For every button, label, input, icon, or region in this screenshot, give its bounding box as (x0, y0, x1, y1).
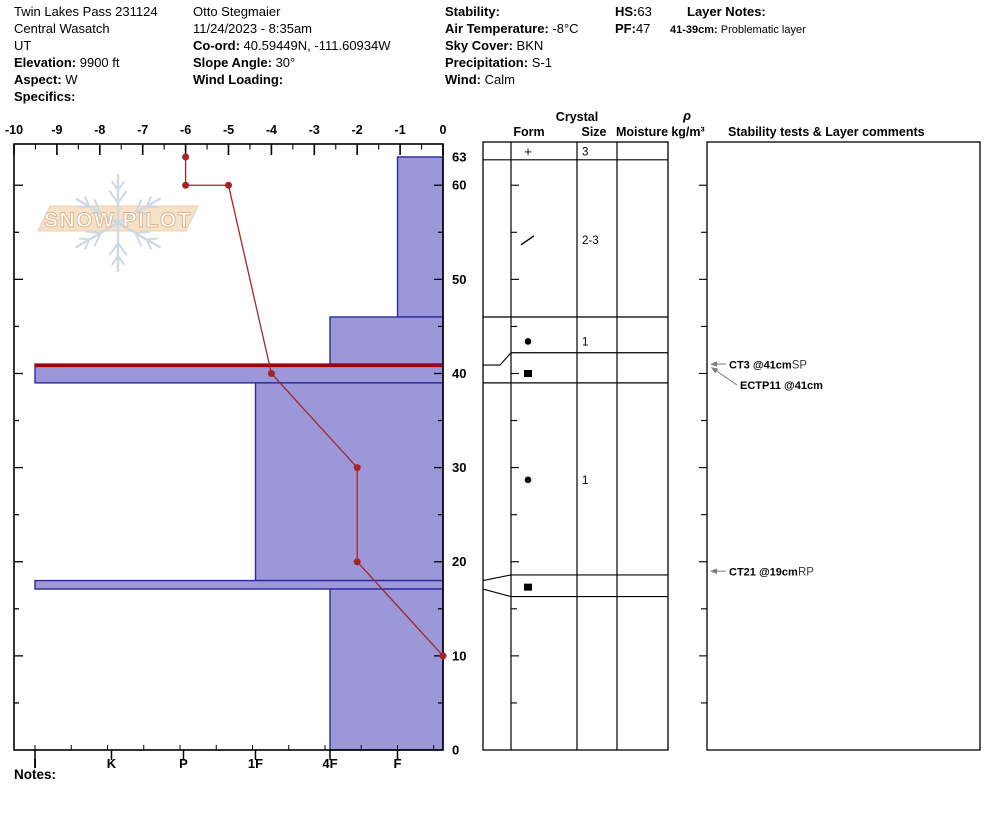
grain-size: 1 (582, 336, 588, 348)
depth-label: 30 (452, 460, 466, 475)
temp-tick-label: -8 (94, 123, 105, 137)
layer-bar (398, 157, 444, 317)
layer-bar (330, 589, 443, 750)
temp-tick-label: -4 (266, 123, 277, 137)
temp-tick-label: -2 (352, 123, 363, 137)
grain-form-plus: + (524, 144, 532, 159)
row-wedge (483, 575, 511, 581)
snowpilot-report: Twin Lakes Pass 231124Central WasatchUTE… (0, 0, 994, 840)
temp-point (354, 558, 361, 565)
hardness-tick-label: F (394, 756, 402, 771)
grain-form-dot (525, 477, 532, 484)
grain-size: 3 (582, 146, 588, 158)
temp-point (354, 464, 361, 471)
depth-label: 50 (452, 272, 466, 287)
snow-profile-chart: SNOW PILOT-10-9-8-7-6-5-4-3-2-1063605040… (0, 0, 994, 840)
test-label: ECTP11 @41cm (740, 380, 823, 392)
temp-tick-label: -6 (180, 123, 191, 137)
temp-point (268, 370, 275, 377)
notes-label: Notes: (14, 767, 56, 782)
temp-tick-label: -7 (137, 123, 148, 137)
header-size: Size (581, 125, 606, 139)
crystal-entries: +32-311 (521, 144, 599, 591)
grain-form-dot (525, 338, 532, 345)
layer-bar (330, 317, 443, 364)
temp-point (182, 182, 189, 189)
temp-tick-label: 0 (440, 123, 447, 137)
hardness-tick-label: K (107, 756, 117, 771)
test-shear-quality: SP (792, 360, 808, 372)
depth-label: 40 (452, 366, 466, 381)
temp-tick-label: -3 (309, 123, 320, 137)
grain-form-square (524, 584, 532, 591)
hardness-tick-label: 1F (248, 756, 263, 771)
layer-bar (256, 383, 444, 581)
grain-form-square (524, 370, 532, 377)
depth-label: 0 (452, 743, 459, 758)
grain-size: 1 (582, 475, 588, 487)
header-comments: Stability tests & Layer comments (728, 125, 925, 139)
test-label: CT21 @19cm (729, 567, 798, 579)
temp-point (225, 182, 232, 189)
temp-point (182, 153, 189, 160)
header-density-units: kg/m³ (671, 125, 704, 139)
header-form: Form (513, 125, 544, 139)
depth-label: 10 (452, 648, 466, 663)
grain-form-slash (521, 236, 534, 245)
stability-tests: CT3 @41cmSPECTP11 @41cmCT21 @19cmRP (710, 360, 823, 579)
row-wedge (483, 589, 511, 597)
hardness-tick-label: P (179, 756, 188, 771)
depth-label: 20 (452, 554, 466, 569)
header-moisture: Moisture (616, 125, 668, 139)
hardness-bars (35, 157, 443, 750)
row-wedge (483, 353, 511, 365)
temp-tick-label: -5 (223, 123, 234, 137)
depth-label: 60 (452, 178, 466, 193)
temp-tick-label: -9 (51, 123, 62, 137)
temp-axis: -10-9-8-7-6-5-4-3-2-10 (5, 123, 447, 155)
hardness-tick-label: 4F (322, 756, 337, 771)
header-density: ρ (682, 108, 691, 123)
depth-label: 63 (452, 149, 466, 164)
crystal-table: CrystalFormSizeMoistureρkg/m³Stability t… (483, 108, 980, 750)
snowpilot-watermark: SNOW PILOT (38, 175, 198, 271)
test-label: CT3 @41cm (729, 360, 792, 372)
grain-size: 2-3 (582, 235, 599, 247)
temp-point (440, 652, 447, 659)
temp-tick-label: -10 (5, 123, 23, 137)
header-crystal: Crystal (556, 110, 598, 124)
test-shear-quality: RP (798, 567, 814, 579)
temp-tick-label: -1 (395, 123, 406, 137)
comments-box (707, 142, 980, 750)
watermark-text: SNOW PILOT (44, 209, 192, 232)
